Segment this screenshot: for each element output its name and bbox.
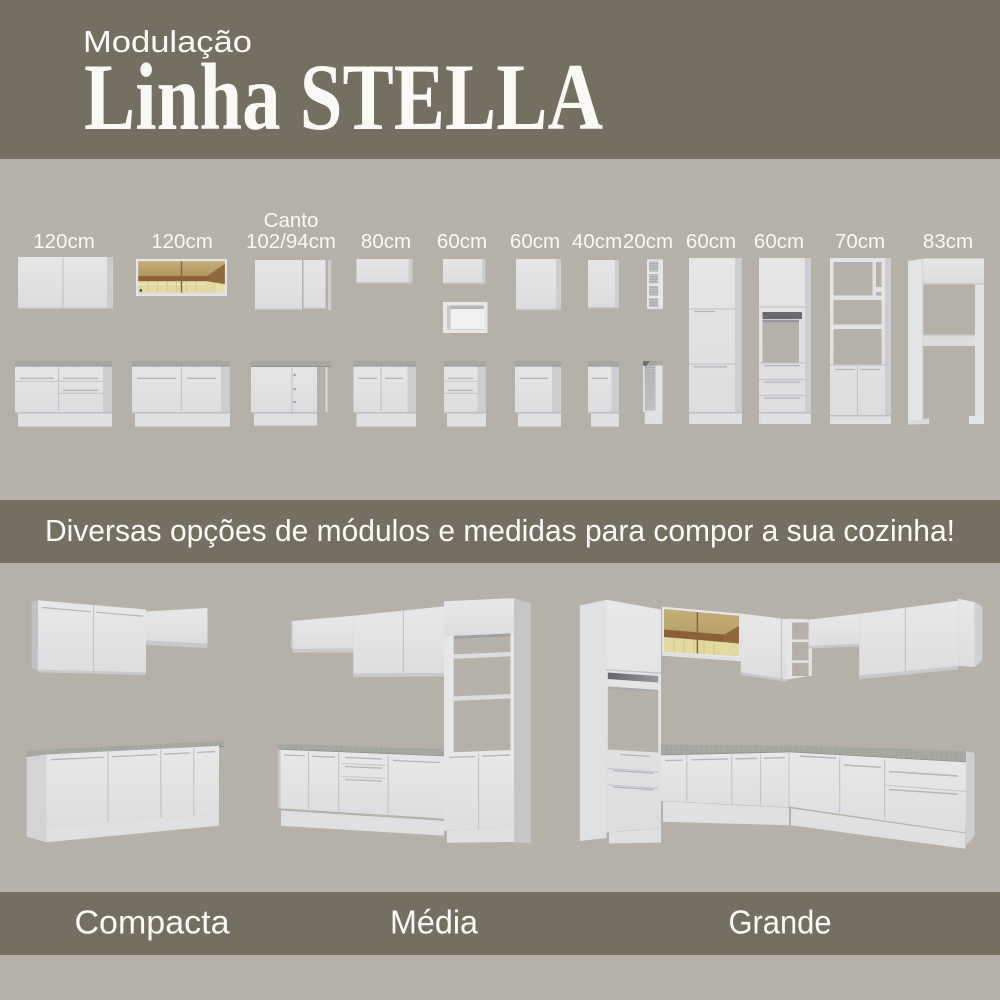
svg-text:120cm: 120cm (33, 230, 95, 253)
svg-text:102/94cm: 102/94cm (246, 230, 336, 253)
svg-text:60cm: 60cm (754, 230, 804, 253)
svg-text:Grande: Grande (729, 904, 832, 941)
svg-text:60cm: 60cm (510, 230, 560, 253)
svg-text:83cm: 83cm (923, 230, 973, 253)
svg-text:Canto: Canto (264, 209, 319, 232)
svg-text:Diversas opções de módulos e m: Diversas opções de módulos e medidas par… (45, 514, 955, 548)
svg-text:Compacta: Compacta (75, 904, 231, 941)
svg-text:120cm: 120cm (151, 230, 213, 253)
svg-text:60cm: 60cm (686, 230, 736, 253)
svg-text:Linha STELLA: Linha STELLA (84, 44, 603, 150)
svg-text:80cm: 80cm (361, 230, 411, 253)
svg-text:60cm: 60cm (437, 230, 487, 253)
svg-text:Média: Média (390, 904, 479, 941)
svg-text:20cm: 20cm (623, 230, 673, 253)
svg-text:40cm: 40cm (572, 230, 622, 253)
svg-text:70cm: 70cm (835, 230, 885, 253)
